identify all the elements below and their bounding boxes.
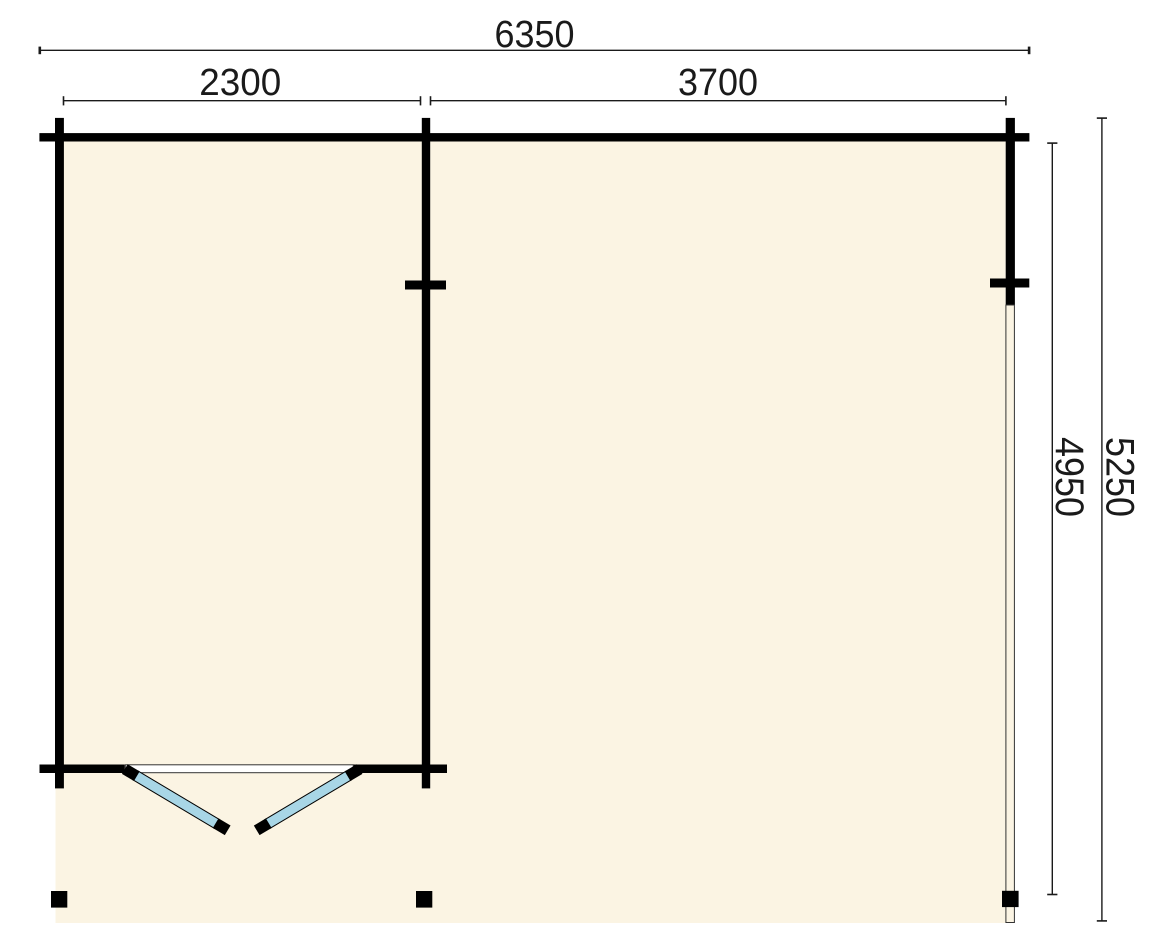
svg-text:4950: 4950 bbox=[1047, 437, 1091, 517]
svg-text:5250: 5250 bbox=[1098, 437, 1142, 517]
svg-text:2300: 2300 bbox=[199, 62, 281, 104]
svg-text:6350: 6350 bbox=[495, 14, 575, 56]
svg-text:3700: 3700 bbox=[678, 62, 758, 104]
